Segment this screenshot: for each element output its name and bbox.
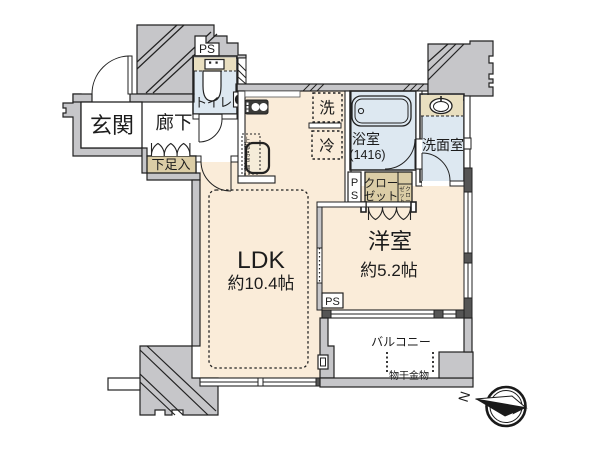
svg-text:PS: PS xyxy=(199,42,215,56)
svg-text:戸: 戸 xyxy=(244,157,251,165)
svg-text:クロー: クロー xyxy=(364,177,399,190)
svg-text:物干金物: 物干金物 xyxy=(389,369,429,382)
svg-text:ゼ: ゼ xyxy=(399,185,405,193)
svg-text:洗面室: 洗面室 xyxy=(422,137,464,153)
svg-text:バルコニー: バルコニー xyxy=(371,335,431,349)
svg-text:約5.2帖: 約5.2帖 xyxy=(360,261,418,280)
svg-text:吊: 吊 xyxy=(244,150,251,158)
svg-text:冷: 冷 xyxy=(319,137,335,155)
svg-text:浴室: 浴室 xyxy=(352,131,380,147)
svg-text:ゼット: ゼット xyxy=(364,190,399,203)
svg-text:廊下: 廊下 xyxy=(155,112,192,133)
svg-text:上: 上 xyxy=(244,135,251,144)
svg-text:洗: 洗 xyxy=(319,99,335,117)
svg-text:P: P xyxy=(351,177,358,189)
svg-text:部: 部 xyxy=(244,142,251,151)
svg-text:棚: 棚 xyxy=(244,163,251,172)
svg-text:トイレ: トイレ xyxy=(194,95,232,110)
svg-text:(1416): (1416) xyxy=(349,148,385,162)
svg-text:S: S xyxy=(351,190,358,202)
svg-text:下足入: 下足入 xyxy=(151,157,190,172)
svg-text:約10.4帖: 約10.4帖 xyxy=(227,274,294,293)
svg-text:洋室: 洋室 xyxy=(368,229,412,254)
svg-text:ク: ク xyxy=(405,186,411,193)
svg-text:LDK: LDK xyxy=(237,247,285,274)
svg-text:玄関: 玄関 xyxy=(90,113,134,138)
svg-text:PS: PS xyxy=(325,296,340,308)
